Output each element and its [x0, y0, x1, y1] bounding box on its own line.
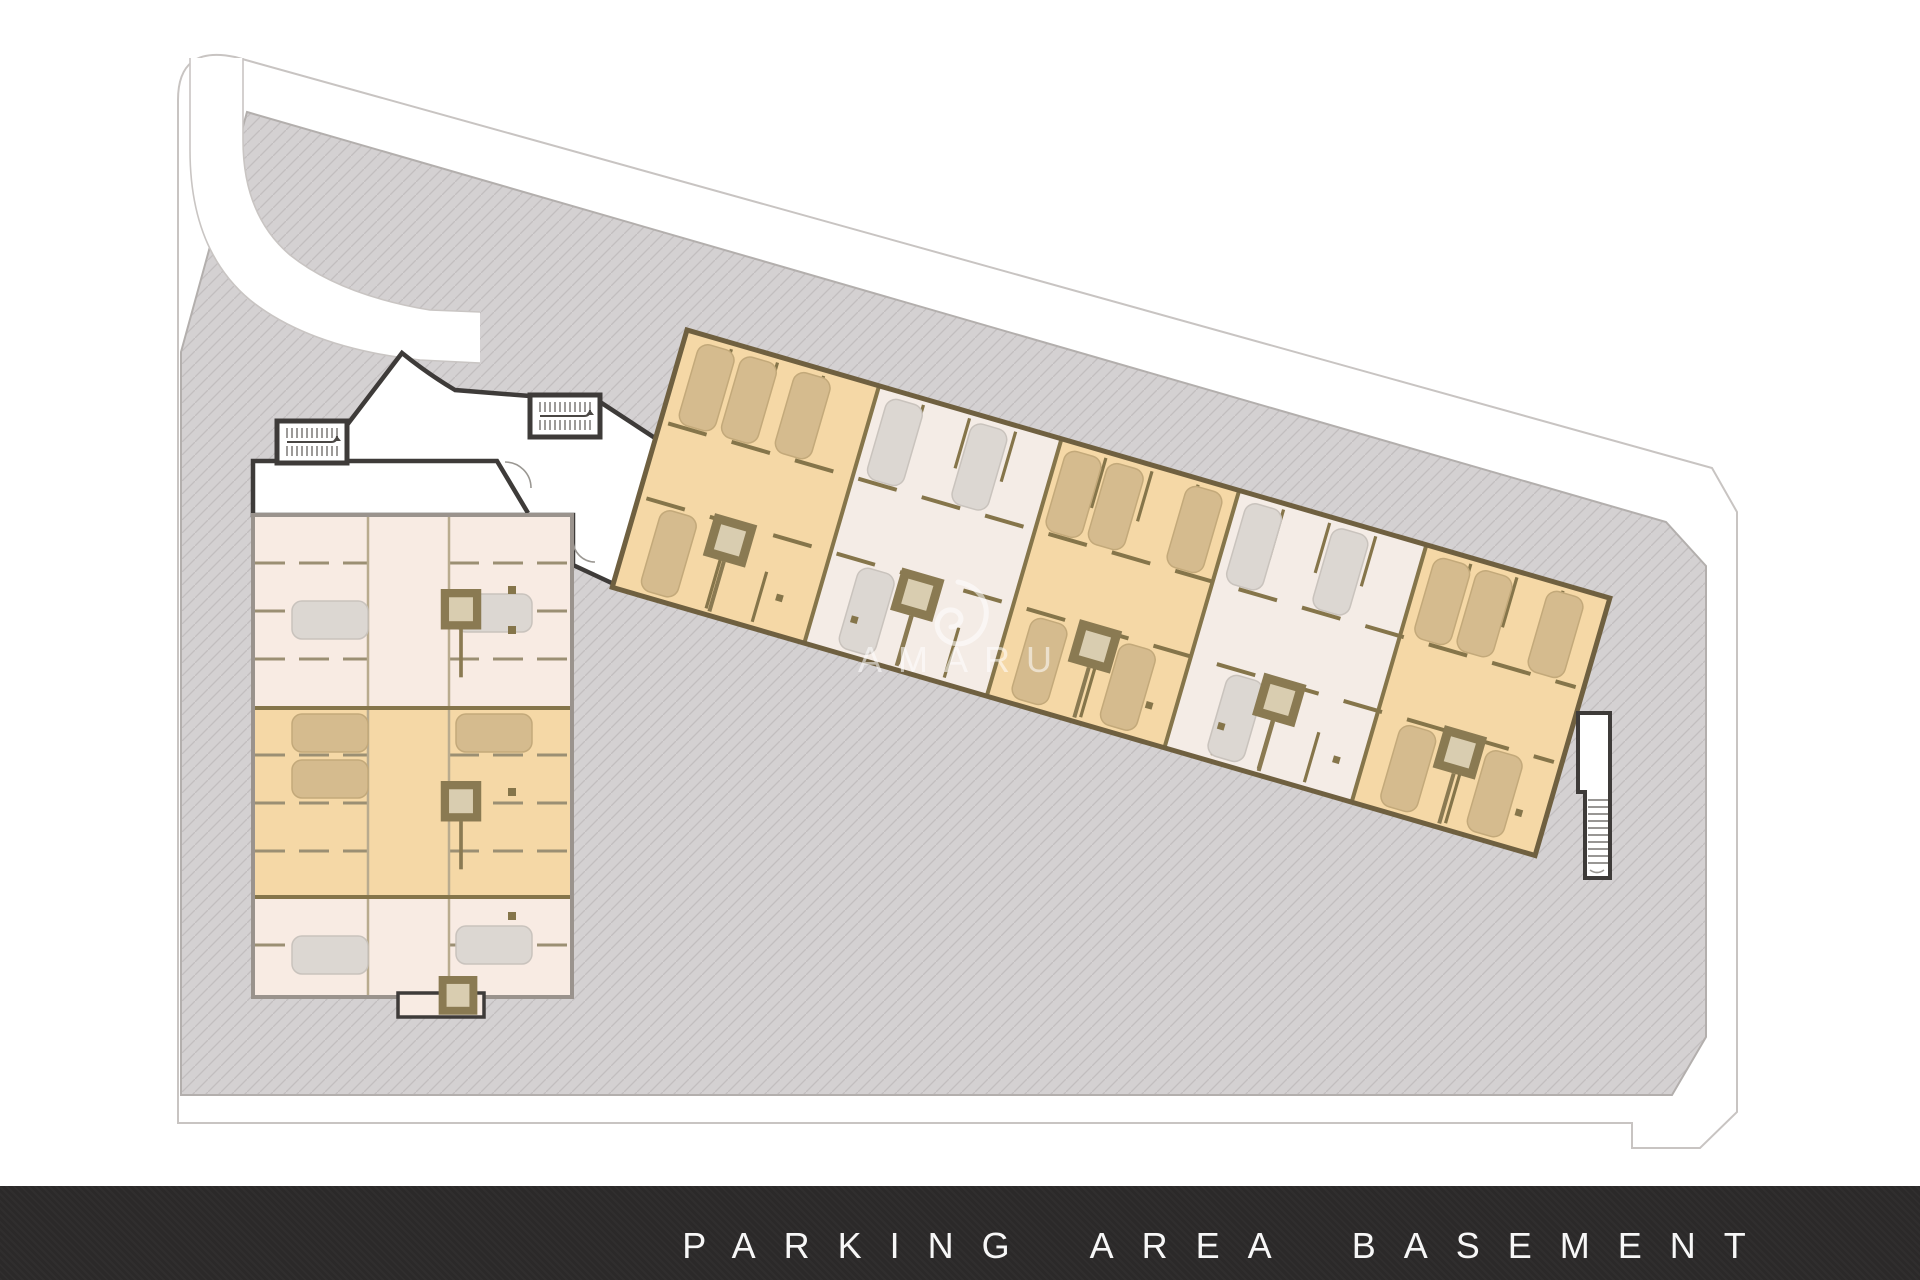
column: [508, 586, 516, 594]
car: [292, 936, 368, 974]
footer-title: PARKING AREA BASEMENT: [682, 1199, 1773, 1267]
page: AMARU PARKING AREA BASEMENT: [0, 0, 1920, 1280]
stairwell-b: [530, 395, 600, 437]
stairwell-a: [277, 421, 347, 463]
floor-plan-canvas: AMARU: [0, 0, 1920, 1186]
car: [292, 760, 368, 798]
elevator-core-left-3: [439, 976, 478, 1015]
footer-bar: PARKING AREA BASEMENT: [0, 1186, 1920, 1280]
car: [456, 926, 532, 964]
column: [508, 626, 516, 634]
watermark-text: AMARU: [858, 639, 1068, 680]
car: [292, 601, 368, 639]
car: [456, 714, 532, 752]
column: [508, 788, 516, 796]
car: [292, 714, 368, 752]
building-block-left: [253, 515, 572, 1017]
column: [508, 912, 516, 920]
